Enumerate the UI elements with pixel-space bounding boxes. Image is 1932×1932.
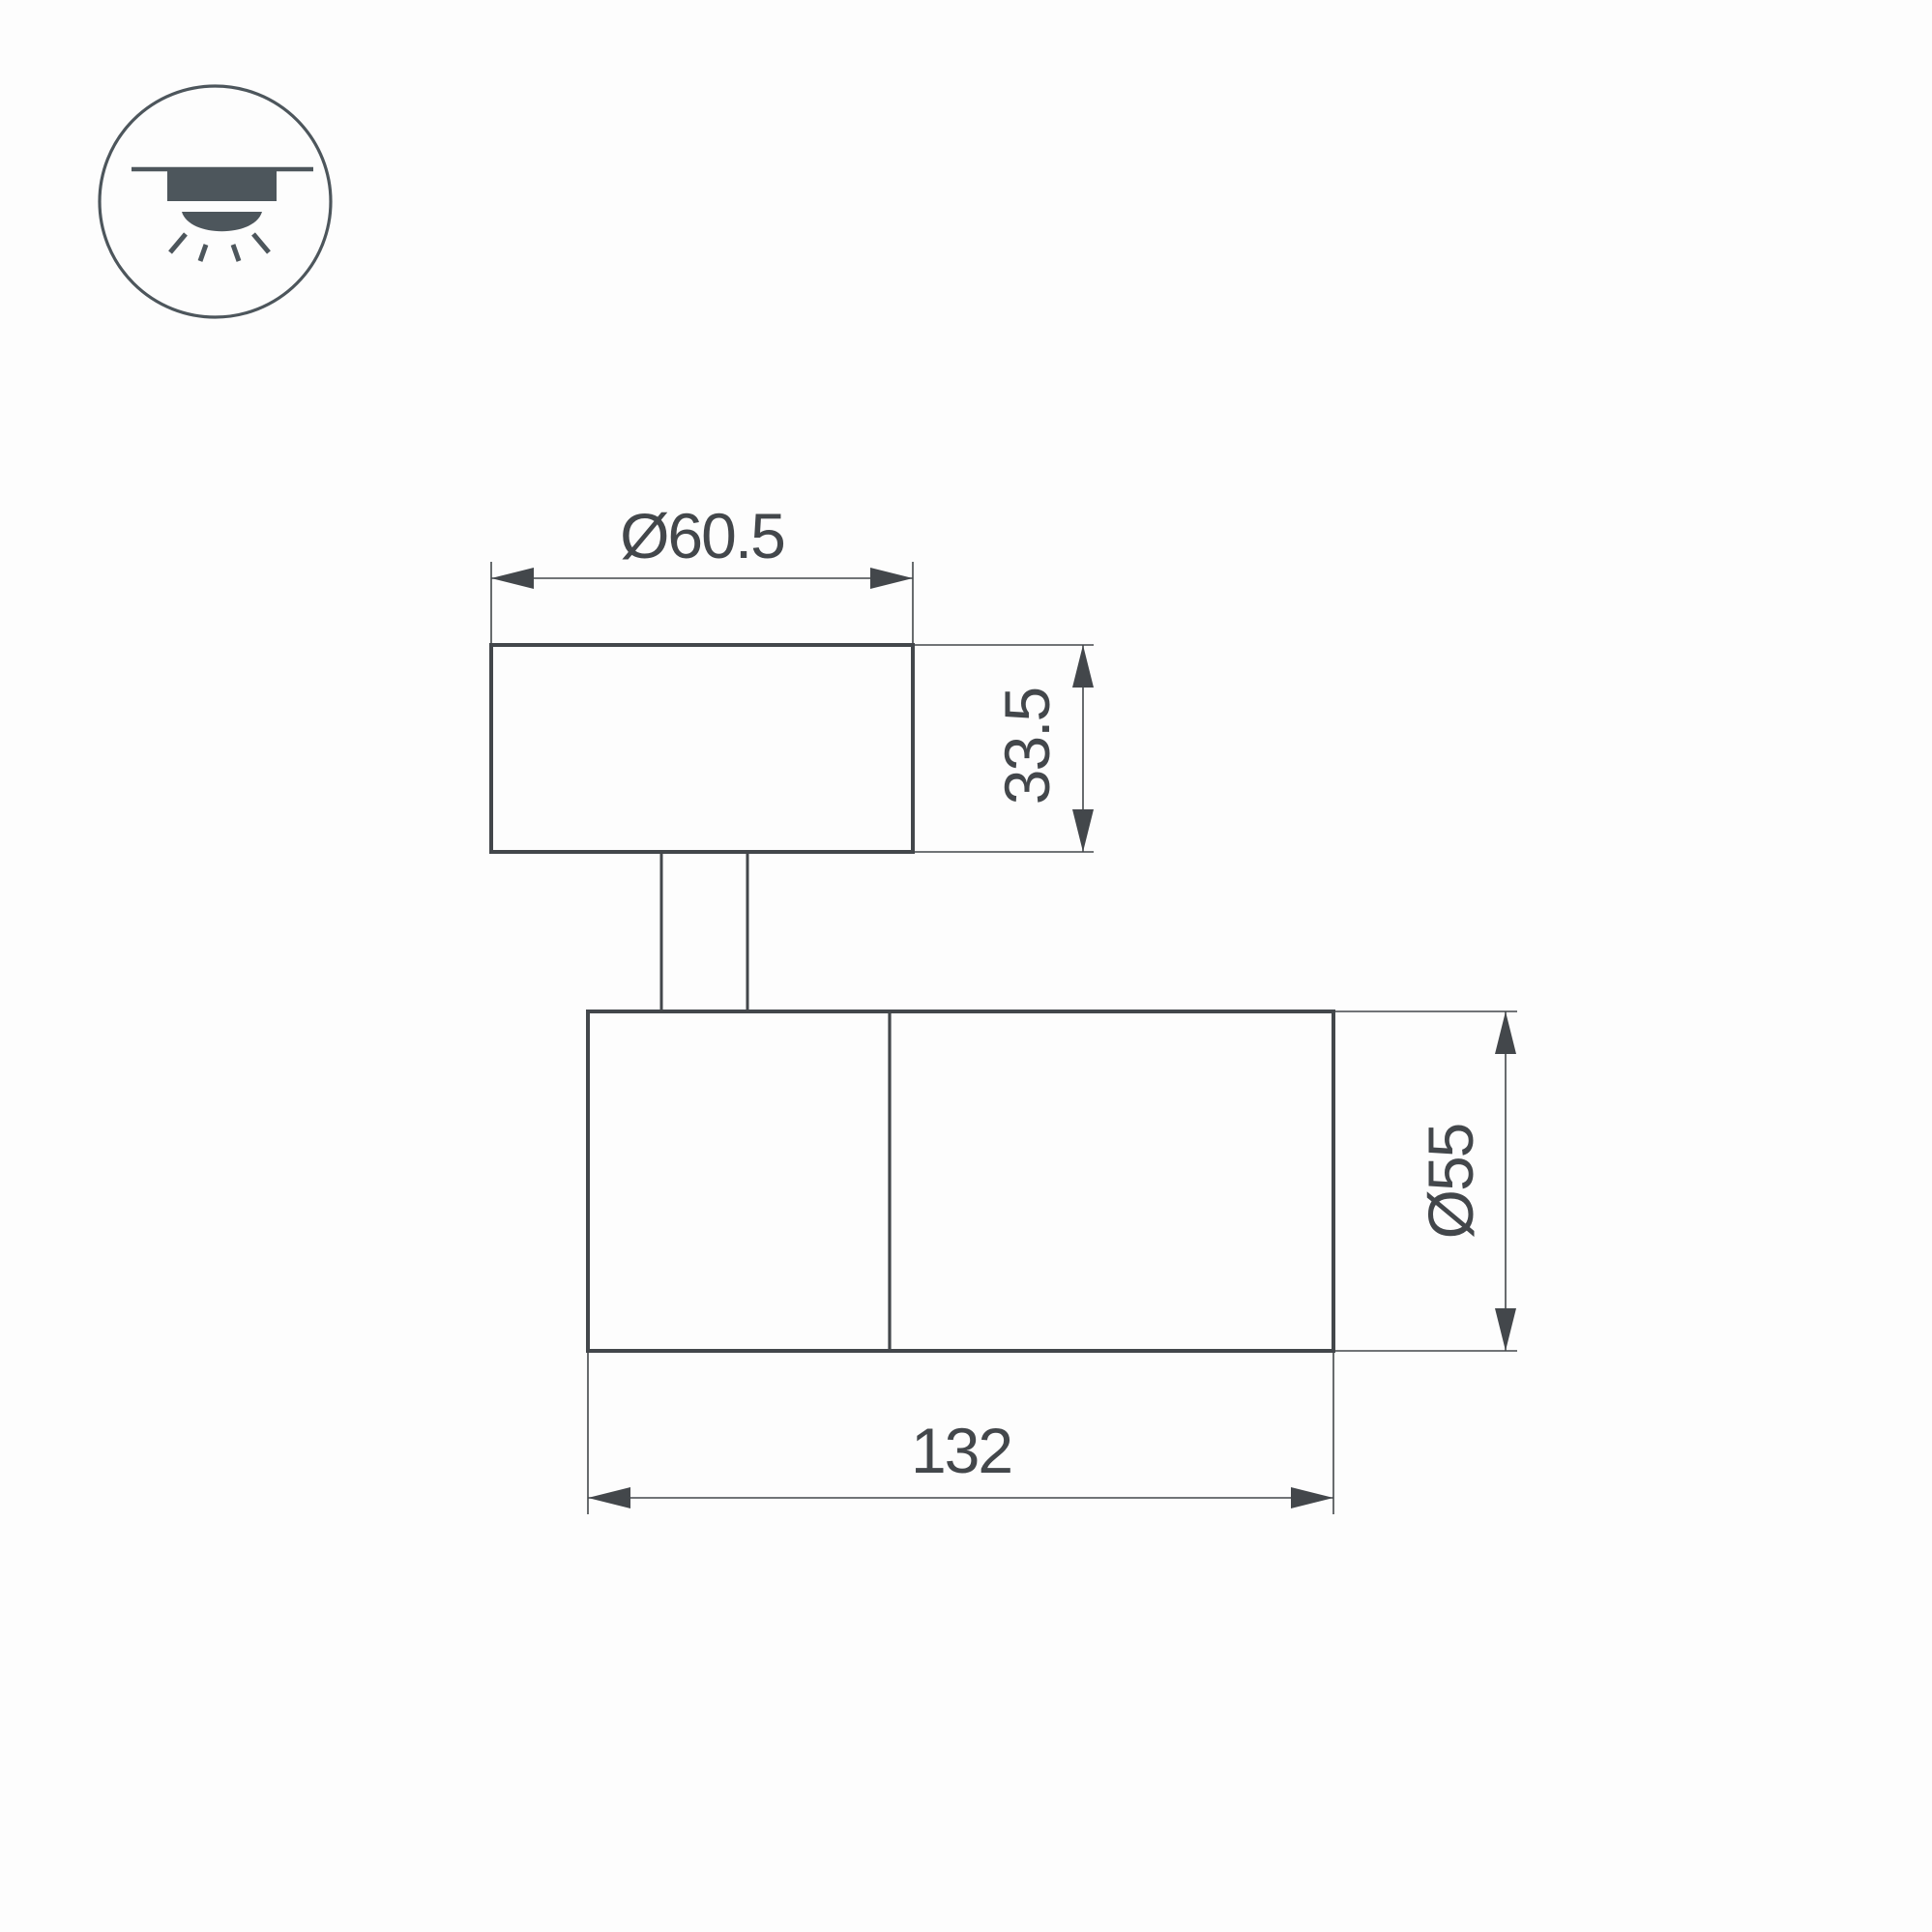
dimension-label-base-diameter: Ø60.5 [620, 500, 784, 571]
dimension-body-length: 132 [588, 1351, 1333, 1514]
arrowhead-down [1072, 809, 1094, 852]
ceiling-surface-mount-light-icon [100, 86, 331, 317]
dimension-base-height: 33.5 [913, 645, 1094, 852]
luminaire-dimension-drawing: Ø60.5 33.5 Ø55 [0, 0, 1932, 1932]
arrowhead-right [1291, 1487, 1333, 1508]
mount-base-outline [491, 645, 913, 852]
dimension-label-body-length: 132 [911, 1415, 1011, 1486]
spot-body-outline [588, 1011, 1333, 1351]
pivot-stem [661, 852, 747, 1011]
icon-light-rays [170, 234, 269, 261]
arrowhead-down [1495, 1308, 1516, 1351]
arrowhead-right [870, 568, 913, 589]
arrowhead-up [1495, 1011, 1516, 1054]
icon-circle-border [100, 86, 331, 317]
dimension-label-base-height: 33.5 [991, 688, 1063, 805]
arrowhead-left [588, 1487, 630, 1508]
dimension-body-diameter: Ø55 [1333, 1011, 1517, 1351]
icon-lamp-dome [182, 212, 262, 231]
dimension-label-body-diameter: Ø55 [1415, 1125, 1486, 1240]
icon-recessed-housing [167, 171, 277, 201]
arrowhead-left [491, 568, 534, 589]
luminaire-side-view [491, 645, 1333, 1351]
dimension-base-diameter: Ø60.5 [491, 500, 913, 645]
arrowhead-up [1072, 645, 1094, 688]
